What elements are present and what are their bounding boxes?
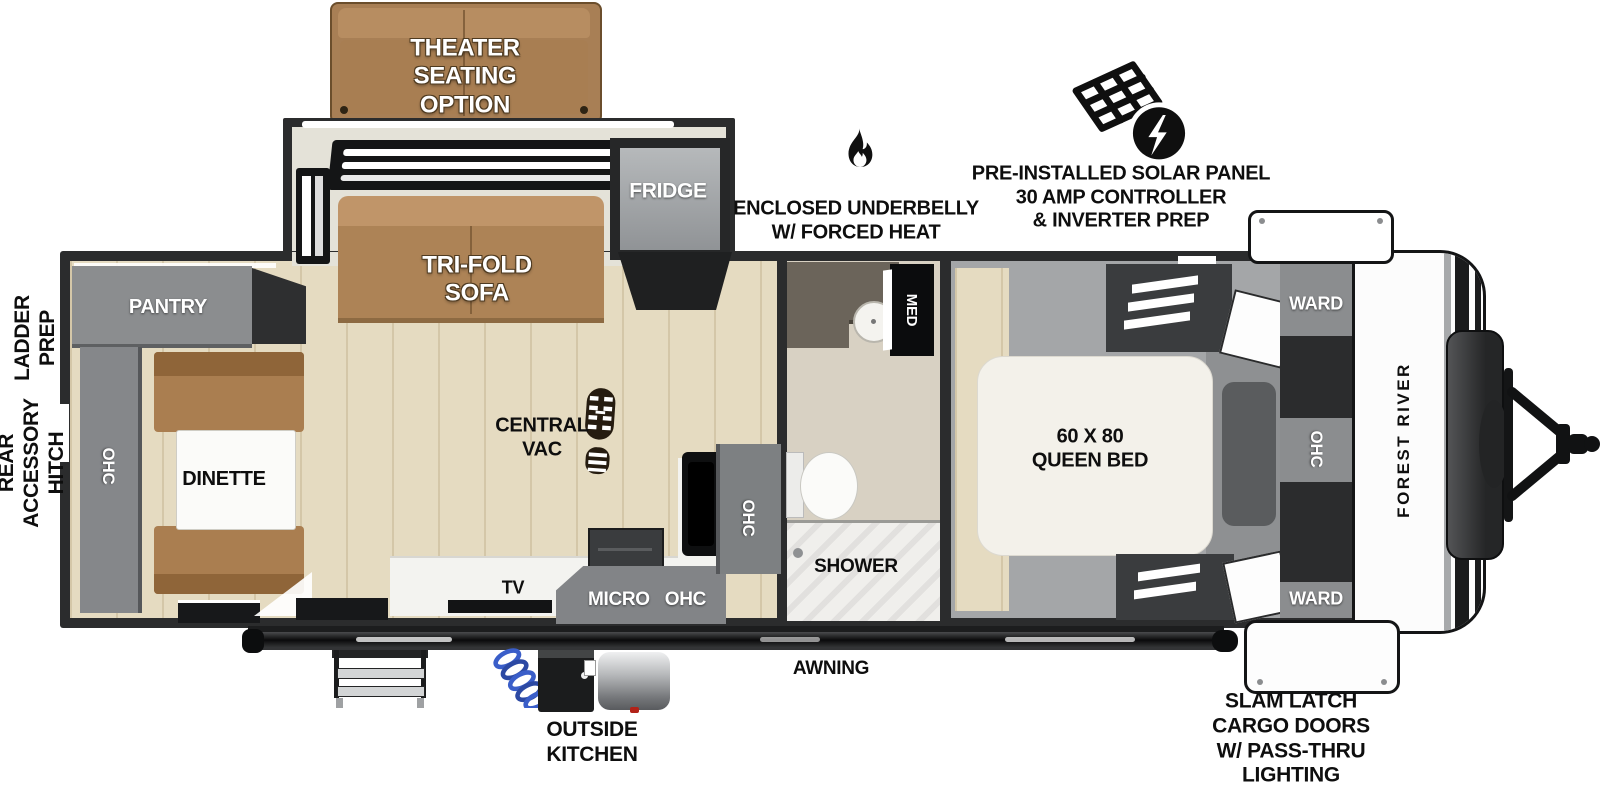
tv-label: TV bbox=[502, 577, 524, 598]
enclosed-underbelly-label: ENCLOSED UNDERBELLY W/ FORCED HEAT bbox=[733, 197, 979, 244]
rv-floorplan-canvas: THEATER SEATING OPTION TRI-FOLD SOFA FRI… bbox=[0, 0, 1600, 796]
entry-door-opening bbox=[296, 598, 388, 620]
screw bbox=[1377, 218, 1383, 224]
step-tread bbox=[337, 686, 425, 697]
solar-prep-label: PRE-INSTALLED SOLAR PANEL 30 AMP CONTROL… bbox=[972, 163, 1270, 234]
outside-kitchen-tank bbox=[598, 652, 670, 710]
cabinet-dark-lower bbox=[1280, 482, 1354, 582]
nightstand-slat bbox=[1124, 311, 1190, 329]
nightstand-top bbox=[1106, 264, 1232, 352]
rear-ohc-label: OHC bbox=[98, 448, 118, 485]
nightstand-slat bbox=[1132, 275, 1198, 293]
window-pane bbox=[302, 176, 311, 256]
toilet-bowl bbox=[800, 452, 858, 520]
bench-backrest bbox=[154, 574, 304, 594]
tri-fold-sofa-label: TRI-FOLD SOFA bbox=[422, 252, 532, 309]
nightstand-slat bbox=[1128, 293, 1194, 311]
tank-valve bbox=[630, 707, 639, 713]
nightstand-slat bbox=[1134, 582, 1196, 600]
bed-pillow bbox=[1222, 382, 1276, 526]
rear-accessory-hitch-label: REAR ACCESSORY HITCH bbox=[0, 398, 69, 528]
sink-drain bbox=[871, 319, 876, 324]
fridge-label: FRIDGE bbox=[629, 180, 707, 205]
step-foot bbox=[336, 698, 343, 708]
awning-label: AWNING bbox=[793, 658, 869, 680]
pantry-label: PANTRY bbox=[129, 296, 207, 320]
ward-bottom-label: WARD bbox=[1289, 588, 1343, 609]
awning-shine bbox=[760, 637, 820, 642]
shower-head bbox=[793, 548, 803, 558]
theater-screw-left bbox=[340, 106, 348, 114]
slideout-side-window bbox=[296, 168, 330, 264]
kitchen-ohc-label: OHC bbox=[738, 500, 758, 537]
stove-inner bbox=[688, 462, 714, 546]
dinette-bench-top bbox=[154, 352, 304, 432]
cargo-door-bottom bbox=[1244, 620, 1400, 694]
med-cabinet-edge bbox=[883, 269, 892, 350]
bath-vanity-deep bbox=[787, 320, 849, 348]
ladder-prep-label: LADDER PREP bbox=[11, 295, 61, 381]
grill-top-strip bbox=[538, 650, 594, 658]
flame-icon bbox=[838, 124, 880, 190]
bath-wall-right bbox=[940, 261, 951, 618]
outside-kitchen-faucet bbox=[584, 660, 596, 676]
step-top-rail bbox=[332, 650, 428, 658]
dinette-label: DINETTE bbox=[182, 468, 265, 492]
window-slat bbox=[342, 162, 649, 169]
nightstand-bottom bbox=[1116, 554, 1234, 620]
brand-label: FOREST RIVER bbox=[1394, 362, 1414, 518]
window-slat bbox=[343, 149, 650, 156]
tv-panel bbox=[448, 600, 552, 613]
micro-ohc-label: MICRO OHC bbox=[588, 589, 706, 611]
queen-bed-label: 60 X 80 QUEEN BED bbox=[1032, 425, 1148, 472]
window-slat bbox=[340, 175, 647, 181]
awning-shine bbox=[1005, 637, 1135, 642]
cargo-doors-label: SLAM LATCH CARGO DOORS W/ PASS-THRU LIGH… bbox=[1212, 689, 1370, 788]
micro-box-line bbox=[598, 548, 652, 551]
awning-cap-right bbox=[1212, 630, 1238, 652]
outside-kitchen-label: OUTSIDE KITCHEN bbox=[546, 718, 637, 768]
central-vac-label: CENTRAL VAC bbox=[495, 414, 588, 461]
awning-cap-left bbox=[242, 629, 264, 653]
awning-shine bbox=[356, 637, 452, 642]
screw bbox=[1257, 679, 1263, 685]
solar-panel-icon bbox=[1066, 58, 1196, 170]
med-label: MED bbox=[902, 294, 920, 326]
nightstand-slat bbox=[1138, 564, 1200, 582]
bedroom-ohc-label: OHC bbox=[1306, 431, 1326, 468]
step-foot bbox=[417, 698, 424, 708]
hitch-a-frame bbox=[1468, 366, 1600, 524]
slideout-roof-highlight bbox=[302, 121, 674, 128]
window-pane bbox=[315, 176, 323, 256]
ward-top-label: WARD bbox=[1289, 293, 1343, 314]
bottom-window bbox=[178, 600, 260, 623]
entry-steps bbox=[332, 650, 428, 708]
theater-screw-right bbox=[580, 106, 588, 114]
bench-backrest bbox=[154, 352, 304, 376]
shower-label: SHOWER bbox=[814, 556, 898, 578]
dinette-bench-bottom bbox=[154, 526, 304, 594]
step-tread bbox=[337, 668, 425, 679]
fridge-cabinet-below bbox=[618, 252, 732, 310]
screw bbox=[1381, 679, 1387, 685]
sofa-backrest bbox=[338, 196, 604, 226]
theater-seating-label: THEATER SEATING OPTION bbox=[410, 35, 519, 120]
cabinet-dark-upper bbox=[1280, 336, 1354, 418]
